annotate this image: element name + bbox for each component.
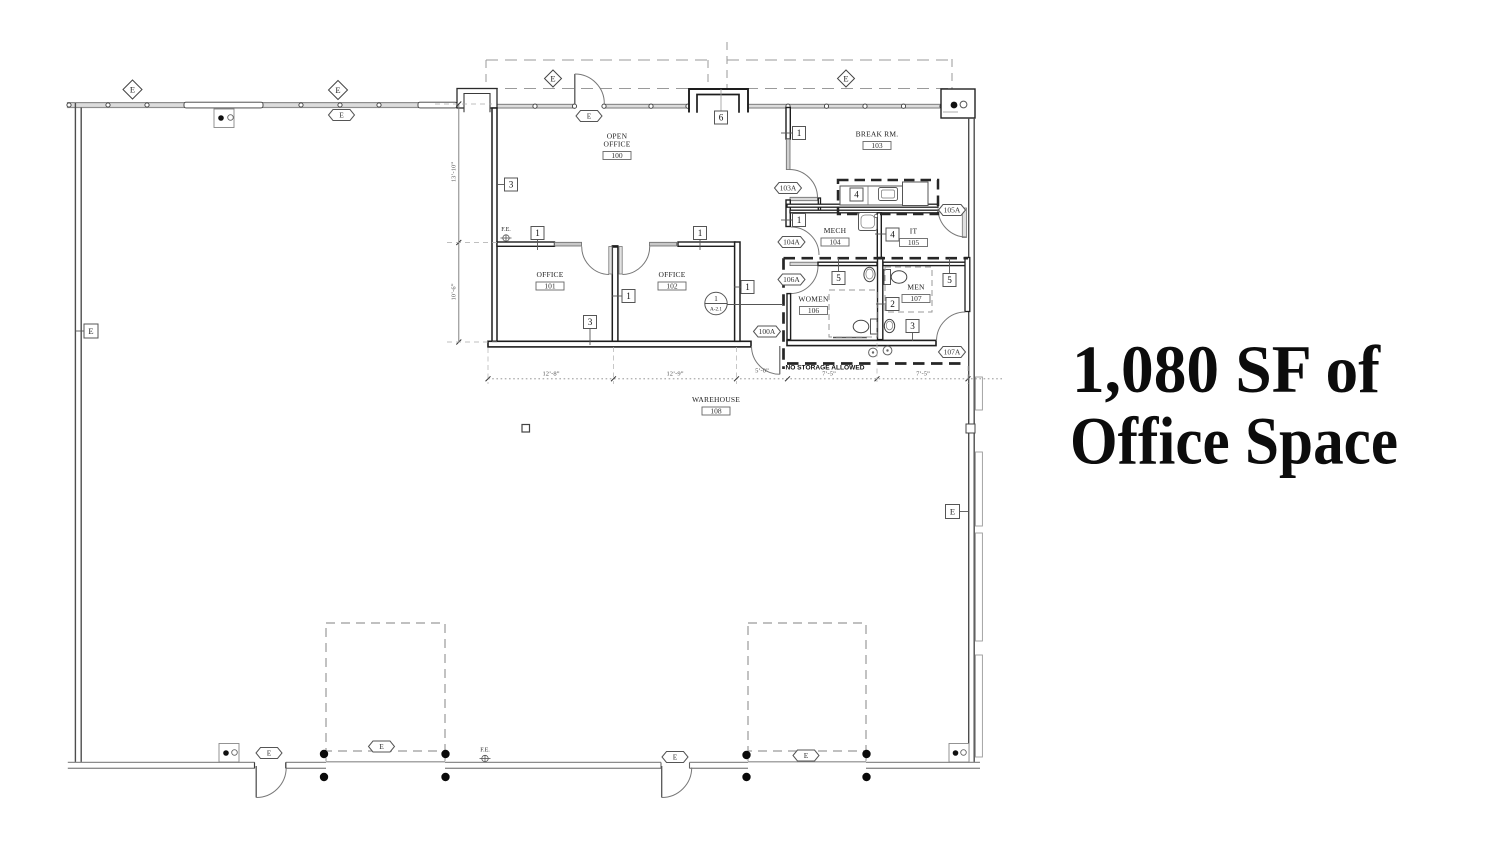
svg-text:3: 3 [588, 317, 593, 327]
svg-text:1: 1 [535, 228, 540, 238]
svg-text:1: 1 [698, 228, 703, 238]
svg-text:E: E [88, 326, 93, 336]
svg-text:1: 1 [626, 291, 631, 301]
svg-text:F.E.: F.E. [501, 227, 511, 233]
svg-text:103: 103 [871, 141, 883, 150]
svg-text:100: 100 [611, 151, 623, 160]
svg-text:E: E [379, 742, 384, 751]
svg-text:NO STORAGE ALLOWED: NO STORAGE ALLOWED [785, 364, 864, 371]
svg-text:4: 4 [854, 190, 859, 200]
svg-text:OFFICE: OFFICE [658, 270, 685, 279]
svg-text:WAREHOUSE: WAREHOUSE [692, 395, 740, 404]
svg-text:E: E [130, 85, 135, 95]
svg-text:102: 102 [666, 282, 678, 291]
svg-text:OFFICE: OFFICE [536, 270, 563, 279]
svg-text:A-2.1: A-2.1 [710, 307, 722, 313]
svg-text:E: E [339, 111, 344, 120]
svg-text:105A: 105A [944, 206, 961, 215]
svg-text:MECH: MECH [824, 226, 847, 235]
svg-text:OFFICE: OFFICE [603, 140, 630, 149]
svg-text:1: 1 [797, 128, 802, 138]
svg-text:12’-9”: 12’-9” [667, 370, 684, 377]
svg-text:106A: 106A [783, 275, 800, 284]
svg-text:1: 1 [797, 215, 802, 225]
svg-text:4: 4 [890, 230, 895, 240]
svg-text:WOMEN: WOMEN [798, 295, 829, 304]
svg-text:7’-5”: 7’-5” [822, 370, 836, 377]
svg-text:5: 5 [836, 273, 841, 283]
svg-text:3: 3 [509, 180, 514, 190]
svg-text:Office Space: Office Space [1070, 403, 1398, 479]
svg-text:1: 1 [745, 282, 750, 292]
svg-text:104: 104 [829, 238, 841, 247]
svg-text:100A: 100A [759, 327, 776, 336]
svg-text:F.E.: F.E. [480, 748, 490, 754]
svg-text:5’-0”: 5’-0” [755, 368, 769, 375]
svg-text:MEN: MEN [907, 283, 925, 292]
svg-text:IT: IT [910, 227, 918, 236]
svg-text:5: 5 [947, 275, 952, 285]
svg-text:13’-10”: 13’-10” [451, 162, 458, 182]
svg-text:103A: 103A [780, 184, 797, 193]
svg-text:107A: 107A [944, 348, 961, 357]
svg-text:E: E [843, 74, 848, 84]
svg-text:E: E [950, 507, 955, 517]
svg-text:7’-5”: 7’-5” [916, 370, 930, 377]
svg-text:E: E [267, 749, 272, 758]
svg-text:E: E [550, 74, 555, 84]
svg-text:E: E [587, 112, 592, 121]
svg-text:105: 105 [908, 238, 920, 247]
svg-text:108: 108 [710, 407, 722, 416]
svg-text:104A: 104A [783, 238, 800, 247]
svg-text:101: 101 [544, 282, 556, 291]
svg-text:1: 1 [714, 295, 718, 303]
svg-text:107: 107 [910, 294, 922, 303]
svg-text:12’-8”: 12’-8” [543, 370, 560, 377]
svg-text:3: 3 [910, 321, 915, 331]
svg-text:E: E [804, 751, 809, 760]
svg-text:6: 6 [719, 113, 724, 123]
svg-text:E: E [335, 85, 340, 95]
svg-text:E: E [673, 753, 678, 762]
svg-text:2: 2 [890, 299, 895, 309]
svg-text:BREAK RM.: BREAK RM. [856, 130, 899, 139]
svg-text:1,080 SF of: 1,080 SF of [1072, 331, 1381, 407]
svg-text:106: 106 [808, 306, 820, 315]
svg-text:10’-6”: 10’-6” [451, 283, 458, 300]
